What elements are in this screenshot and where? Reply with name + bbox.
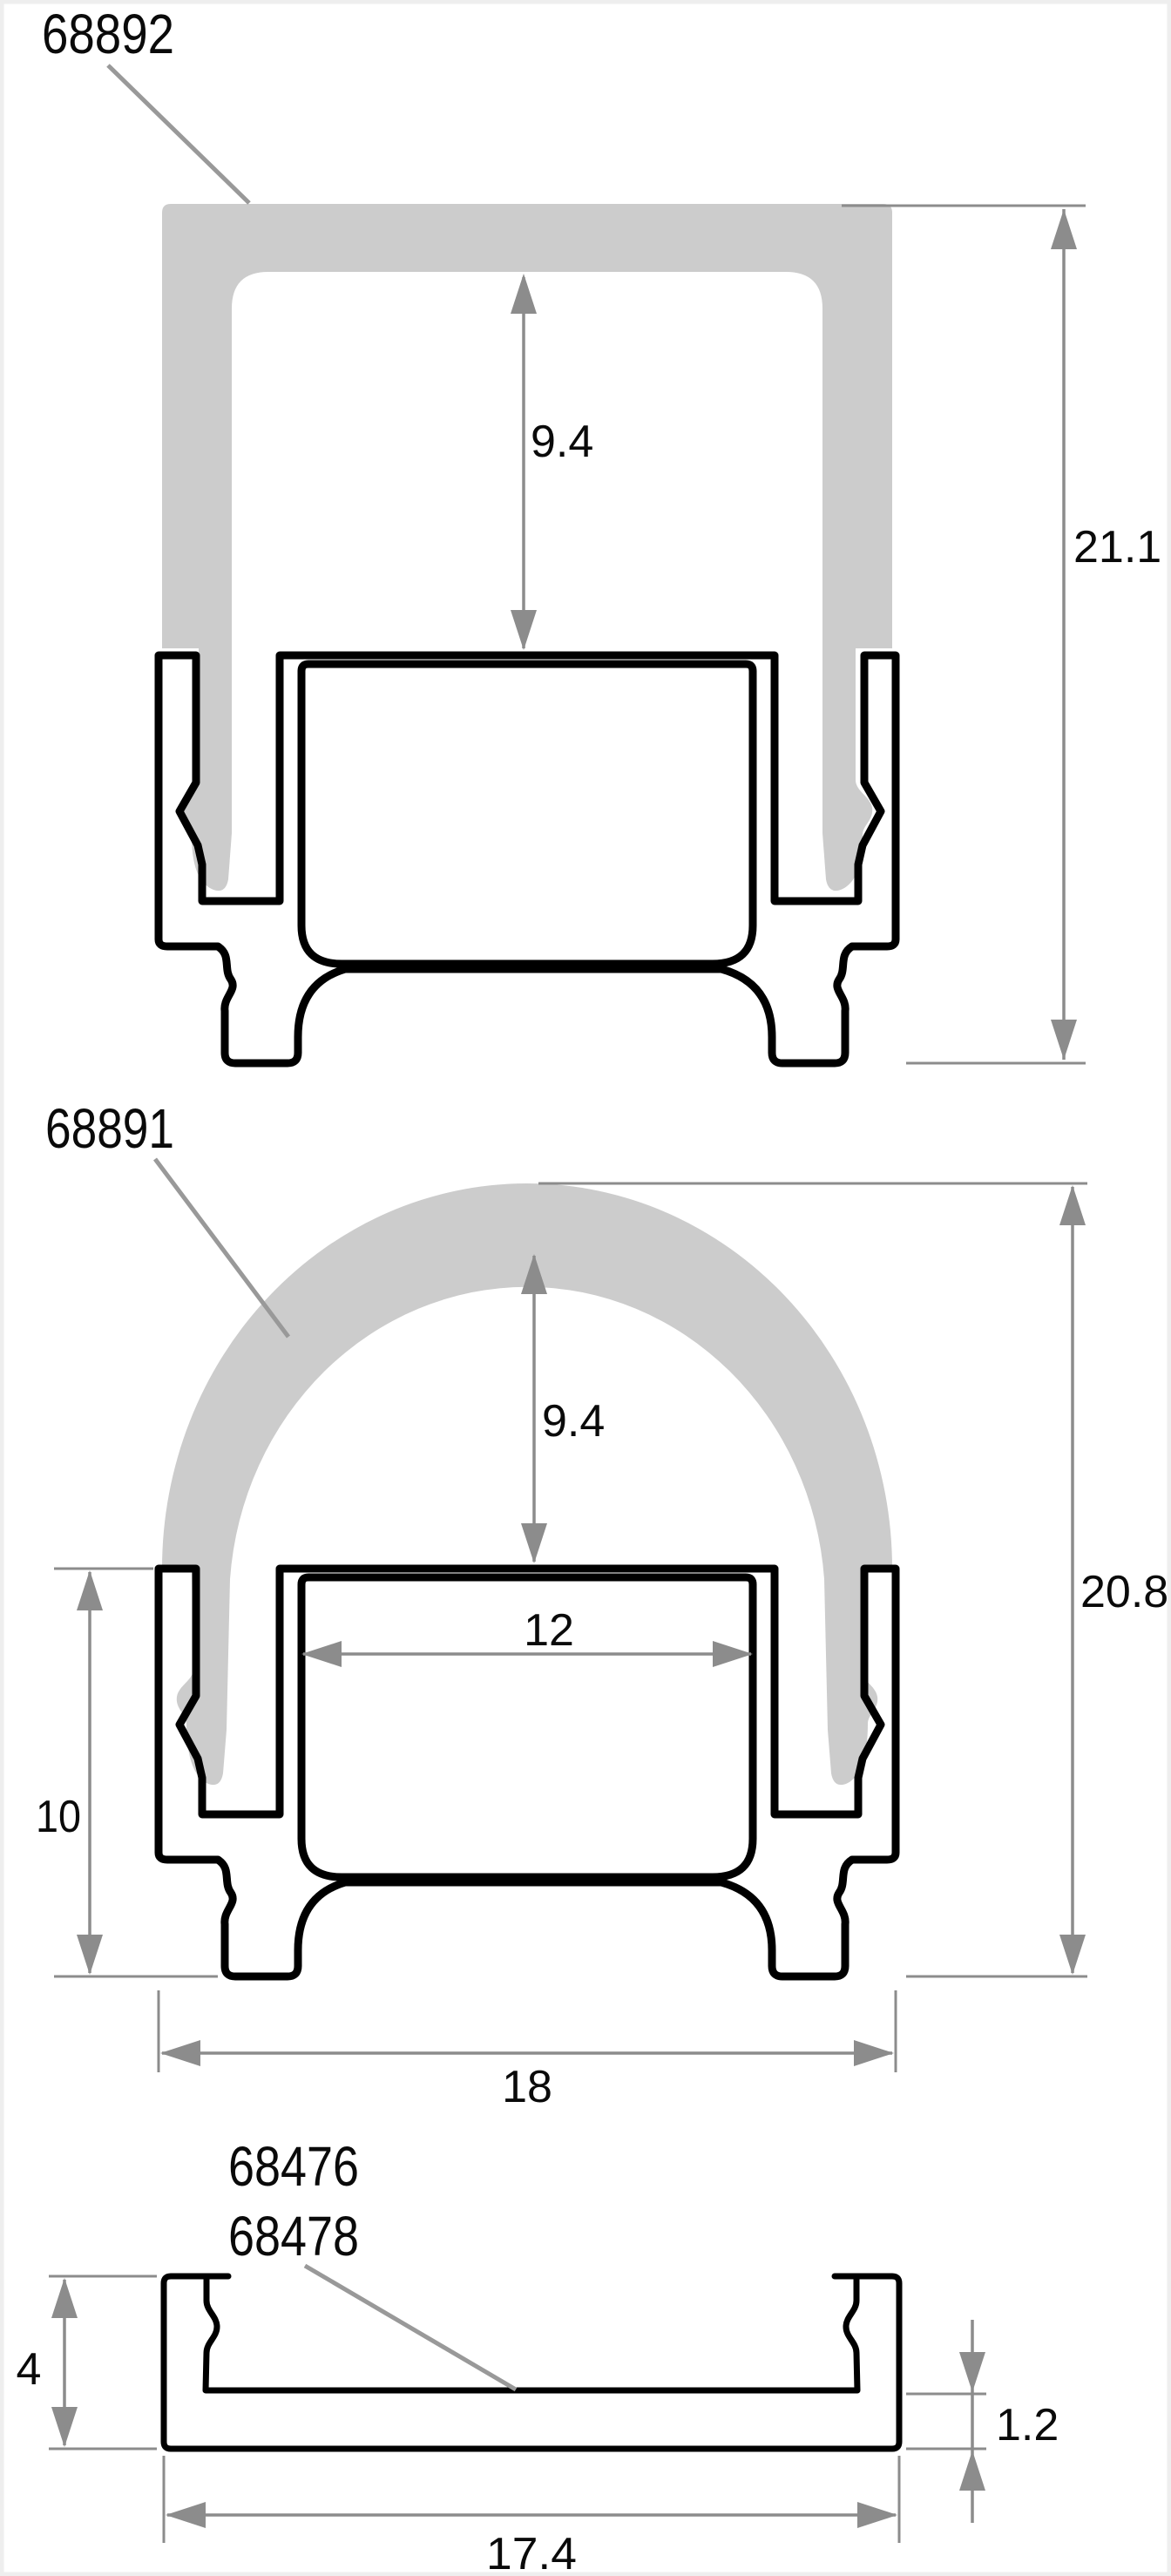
arrow-up-icon — [959, 2451, 985, 2491]
cover-68891-cross-section — [162, 1183, 892, 1785]
base-profile-68892 — [159, 655, 896, 1063]
arrow-down-icon — [959, 2352, 985, 2392]
arrow-right-icon — [857, 2502, 897, 2528]
dim-text-20-8: 20.8 — [1080, 1567, 1168, 1617]
drawing-sheet: 68892 9.4 21.1 68891 — [0, 0, 1171, 2576]
arrow-up-icon — [1051, 209, 1077, 249]
arrow-down-icon — [511, 610, 537, 650]
dim-text-4: 4 — [17, 2344, 42, 2395]
arrow-left-icon — [160, 2040, 200, 2066]
dim-text-21-1: 21.1 — [1073, 522, 1161, 573]
dim-text-17-4: 17.4 — [486, 2529, 577, 2576]
dimension-inner-height-9-4: 9.4 — [521, 1254, 605, 1563]
drawing-68891: 68891 9.4 12 10 — [36, 1097, 1168, 2112]
flat-profile-outline — [164, 2276, 899, 2449]
arrow-down-icon — [77, 1935, 103, 1975]
arrow-down-icon — [1051, 1020, 1077, 1060]
base-profile-outline — [159, 655, 896, 1063]
arrow-up-icon — [511, 274, 537, 314]
led-channel-cavity — [301, 664, 753, 964]
dim-text-9-4: 9.4 — [542, 1396, 605, 1447]
dim-text-18: 18 — [502, 2062, 552, 2112]
arrow-left-icon — [301, 1641, 342, 1667]
leader-line-68891 — [155, 1159, 288, 1337]
dimension-base-height-10: 10 — [36, 1569, 218, 1976]
arrow-right-icon — [713, 1641, 753, 1667]
arrow-right-icon — [854, 2040, 894, 2066]
leader-line-68892 — [108, 65, 249, 203]
arrow-down-icon — [521, 1523, 547, 1563]
arrow-up-icon — [1059, 1185, 1086, 1225]
arrow-down-icon — [51, 2407, 78, 2447]
part-label-68476: 68476 — [228, 2135, 359, 2198]
dimension-total-width-18: 18 — [159, 1990, 896, 2112]
part-label-68478: 68478 — [228, 2205, 359, 2268]
dim-text-9-4: 9.4 — [531, 417, 593, 467]
arrow-left-icon — [166, 2502, 206, 2528]
dimension-inner-height-9-4: 9.4 — [511, 274, 593, 650]
dim-text-10: 10 — [36, 1792, 81, 1842]
leader-line-68478 — [305, 2266, 516, 2390]
dimension-channel-width-12: 12 — [301, 1605, 753, 1667]
profiles-technical-drawing: 68892 9.4 21.1 68891 — [0, 0, 1171, 2576]
arrow-down-icon — [1059, 1935, 1086, 1975]
drawing-68476-68478: 68476 68478 4 1.2 17.4 — [17, 2135, 1059, 2576]
dim-text-12: 12 — [524, 1605, 574, 1656]
dimension-floor-thickness-1-2: 1.2 — [906, 2320, 1059, 2523]
dimension-height-4: 4 — [17, 2276, 157, 2449]
part-label-68891: 68891 — [45, 1097, 174, 1160]
dim-text-1-2: 1.2 — [996, 2400, 1059, 2451]
drawing-68892: 68892 9.4 21.1 — [42, 3, 1161, 1063]
arrow-up-icon — [77, 1570, 103, 1610]
dimension-total-width-17-4: 17.4 — [164, 2456, 899, 2576]
arrow-up-icon — [51, 2278, 78, 2318]
part-label-68892: 68892 — [42, 3, 174, 65]
